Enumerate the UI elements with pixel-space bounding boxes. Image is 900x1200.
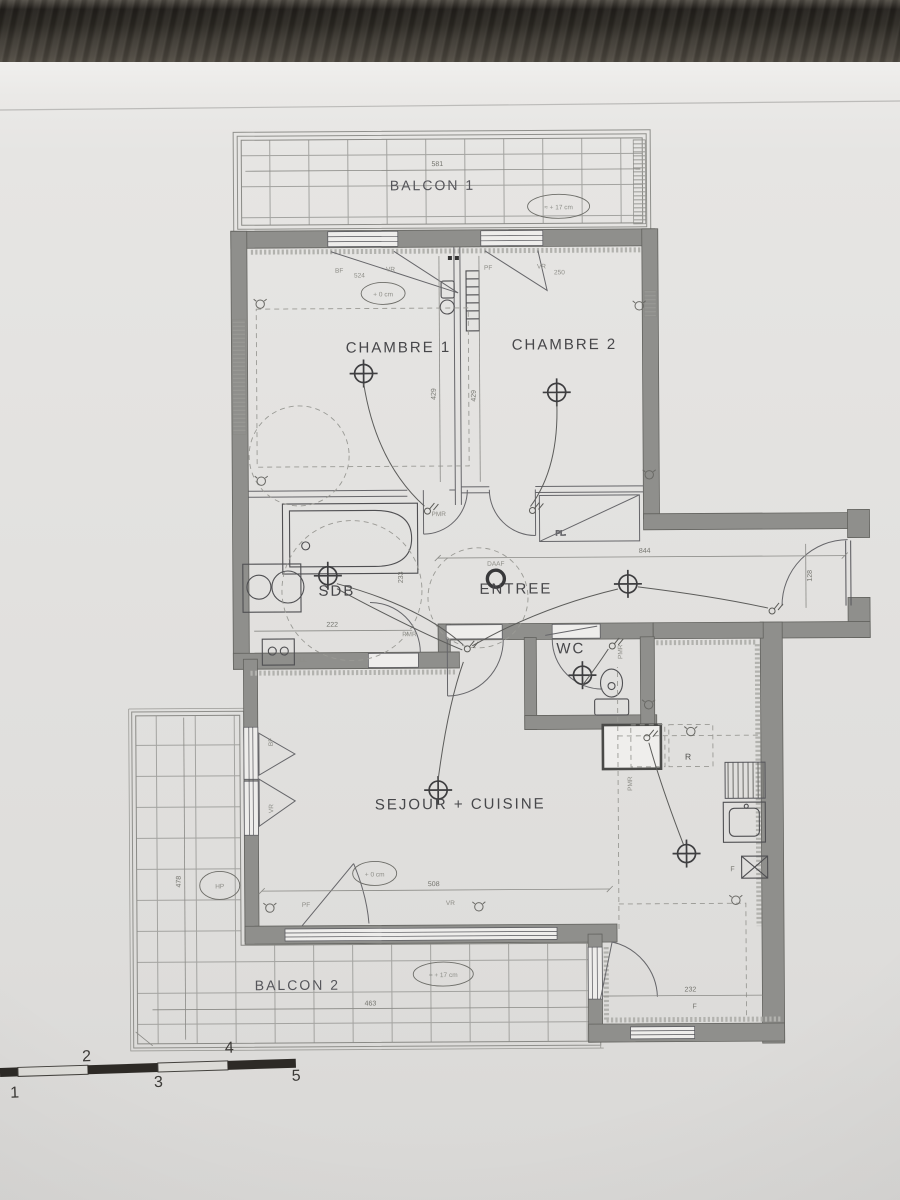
floor-plan-photo: 581 BALCON 1 ≈ + 17 cm BALCON 2 ≈ + 17 c… (0, 0, 900, 1200)
balcony-2-level: ≈ + 17 cm (429, 972, 458, 979)
balcony-2: BALCON 2 ≈ + 17 cm 463 478 HP (129, 706, 604, 1051)
chambre1-level: + 0 cm (373, 291, 393, 298)
switches-sockets (254, 296, 785, 912)
balcony-1: 581 BALCON 1 ≈ + 17 cm (233, 130, 651, 234)
washer-label: LL (299, 657, 307, 664)
sejour-width-dim: 508 (428, 881, 440, 888)
door-gap-wc (552, 624, 600, 638)
plan: 581 BALCON 1 ≈ + 17 cm BALCON 2 ≈ + 17 c… (125, 128, 873, 1051)
w3-shutter: VR (446, 900, 455, 907)
hall-length-dim: 844 (639, 548, 651, 555)
scale-tick-5: 5 (292, 1068, 302, 1085)
door-gap-corner-room (588, 947, 602, 999)
ceiling-lights (313, 357, 701, 869)
pmr-3: PMR (617, 644, 624, 659)
scale-tick-4: 4 (225, 1040, 235, 1057)
window-chambre1 (328, 231, 398, 246)
bathtub (282, 503, 417, 574)
chambre2-depth-dim: 429 (471, 390, 478, 402)
corner-window-label: F (692, 1004, 696, 1011)
pmr-1: PMR (431, 511, 446, 518)
sejour-label: SEJOUR + CUISINE (375, 795, 546, 813)
chambre1-depth-dim: 429 (431, 388, 438, 400)
balcony-1-width-dim: 581 (431, 161, 443, 168)
sejour-level: + 0 cm (365, 871, 385, 878)
toilet (594, 669, 628, 715)
sdb-depth-dim: 233 (398, 571, 405, 583)
light-chambre1 (350, 359, 378, 387)
w1-shutter: VR (386, 266, 395, 273)
scale-tick-1: 1 (10, 1084, 20, 1101)
scale-tick-3: 3 (154, 1074, 164, 1091)
w4-type: BF (268, 738, 275, 746)
door-gap-sejour (446, 625, 502, 639)
light-chambre2 (543, 378, 571, 406)
light-cables (336, 381, 770, 847)
balcony-2-label: BALCON 2 (255, 977, 340, 994)
hob (725, 762, 765, 798)
w2-size: 250 (554, 269, 565, 276)
partitions: PL. (247, 246, 644, 543)
room-labels: CHAMBRE 1 CHAMBRE 2 SDB ENTREE WC SEJOUR… (317, 281, 621, 886)
pmr-2: PMR (402, 631, 417, 638)
entry-door-gap (846, 541, 851, 606)
window-sejour-bottom (285, 927, 557, 941)
entree-label: ENTREE (479, 580, 552, 597)
balcony-2-tile-grid (136, 713, 597, 1044)
w1-type: BF (335, 268, 343, 275)
fridge-label: R (685, 752, 691, 762)
pmr-labels: PMR PMR PMR PMR (401, 510, 634, 792)
corner-width-dim: 232 (685, 987, 697, 994)
door-gap-sdb (368, 653, 418, 667)
w2-shutter: VR (537, 263, 546, 270)
balcony-1-label: BALCON 1 (390, 177, 475, 194)
w4-shutter: VR (268, 804, 275, 813)
balcony-2-depth-dim: 478 (176, 876, 183, 888)
wc-label: WC (556, 640, 585, 657)
floor-plan-drawing: 581 BALCON 1 ≈ + 17 cm BALCON 2 ≈ + 17 c… (0, 0, 900, 1200)
light-entree (614, 570, 642, 598)
sdb-width-dim: 222 (326, 622, 338, 629)
window-corner-room (631, 1027, 695, 1039)
hall-width-dim: 128 (807, 570, 814, 582)
pmr-4: PMR (627, 776, 634, 791)
w1-size: 524 (354, 273, 365, 280)
w2-type: PF (484, 265, 492, 272)
chambre1-label: CHAMBRE 1 (346, 339, 452, 357)
balcony-1-level: ≈ + 17 cm (544, 204, 573, 211)
window-chambre2 (481, 230, 543, 245)
balcony-2-width-dim: 463 (365, 1000, 377, 1007)
window-chambre1-left (232, 319, 246, 434)
dashed-guides (248, 308, 528, 662)
sdb-label: SDB (318, 583, 355, 600)
placard-label: PL. (556, 530, 567, 537)
washbasin (243, 564, 304, 612)
light-sejour-2 (672, 839, 700, 867)
scale-tick-2: 2 (82, 1048, 92, 1065)
hp-label: HP (215, 883, 224, 890)
oven-label: F (730, 866, 734, 873)
chambre2-label: CHAMBRE 2 (512, 336, 618, 354)
daaf-label: DAAF (487, 561, 504, 568)
sheet-edge-line (0, 101, 900, 110)
window-sejour-left (244, 727, 259, 835)
w3-type: PF (302, 902, 310, 909)
